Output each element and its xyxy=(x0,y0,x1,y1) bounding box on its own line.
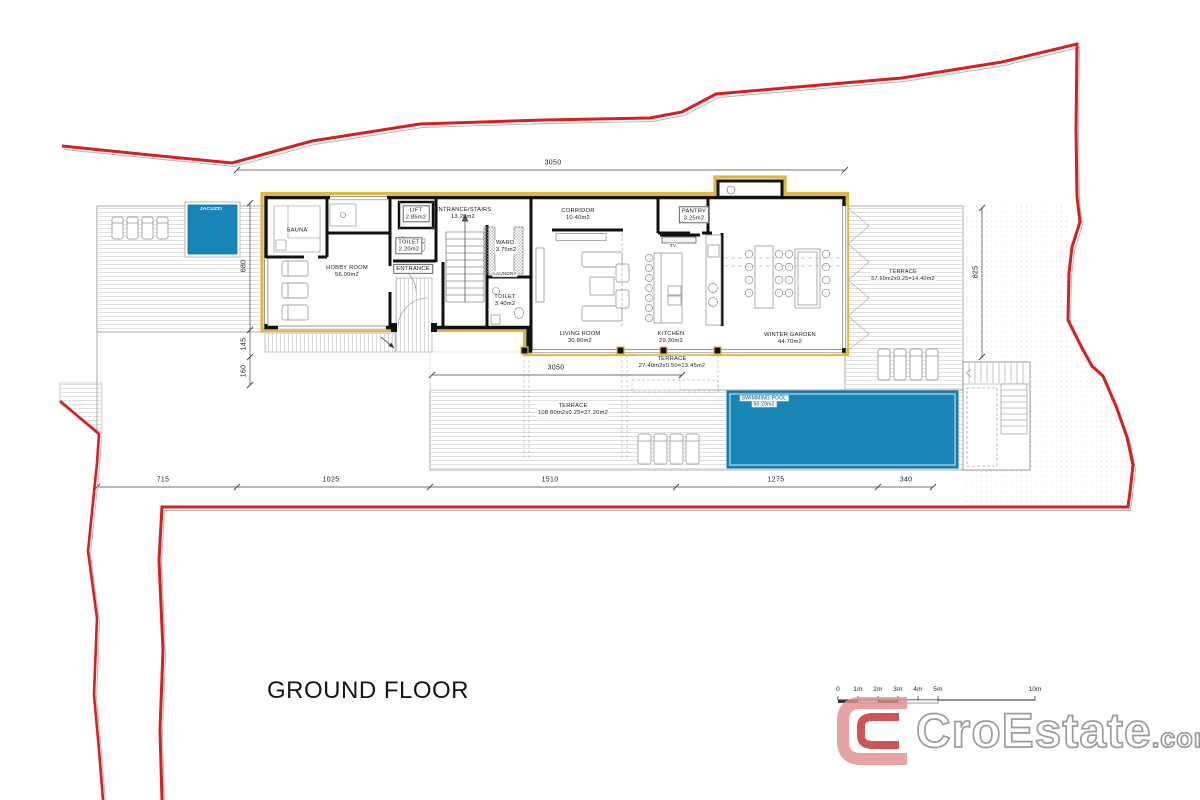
scale-label-1m: 1m xyxy=(853,686,862,694)
room-label-winter-garden: WINTER GARDEN44.70m2 xyxy=(764,332,816,346)
room-label-toilet-1: TOILET2.20m2 xyxy=(395,237,422,254)
terrace-south-label: TERRACE27.40m2x0.50=13.45m2 xyxy=(638,356,707,370)
scale-label-0: 0 xyxy=(836,686,840,694)
room-label-sauna: SAUNA xyxy=(287,227,308,234)
logo-mark-icon xyxy=(843,703,907,759)
room-label-entrance: ENTRANCE xyxy=(393,264,433,274)
room-label-lift: LIFT2.85m2 xyxy=(403,205,430,222)
room-label-corridor: CORRIDOR10.40m2 xyxy=(561,208,594,222)
dim-left-680: 680 xyxy=(241,260,250,273)
floor-plan-drawing xyxy=(0,0,1200,800)
dim-bottom-1510: 1510 xyxy=(542,477,559,486)
room-label-kitchen: KITCHEN29.30m2 xyxy=(658,331,685,345)
room-label-wardrobe: WARD.3.75m2 xyxy=(495,240,518,254)
room-label-pantry: PANTRY3.25m2 xyxy=(679,206,709,223)
floor-plan-canvas: SAUNA HOBBY ROOM56.00m2 LIFT2.85m2 ENTRA… xyxy=(0,0,1200,800)
scale-label-2m: 2m xyxy=(873,686,882,694)
room-label-hobby: HOBBY ROOM56.00m2 xyxy=(326,265,368,279)
dim-south-width: 3050 xyxy=(548,365,565,374)
dim-bottom-1275: 1275 xyxy=(768,477,785,486)
scale-label-3m: 3m xyxy=(893,686,902,694)
brand-name: CroEstate xyxy=(916,706,1152,759)
label-tv: TV xyxy=(669,243,677,249)
terrace-east-label: TERRACE57.60m2x0.25=14.40m2 xyxy=(870,269,935,283)
dim-east-depth: 825 xyxy=(973,266,982,279)
brand-tld: .com xyxy=(1152,725,1200,752)
room-label-living: LIVING ROOM30.80m2 xyxy=(560,331,601,345)
terrace-main-label: TERRACE108.80m2x0.25=27.20m2 xyxy=(537,403,609,417)
room-label-toilet-2: TOILET3.40m2 xyxy=(494,294,515,308)
room-label-entrance-stairs: ENTRANCE/STAIRS13.20m2 xyxy=(434,207,491,221)
page-title: GROUND FLOOR xyxy=(267,677,469,705)
room-label-laundry: LAUNDRY xyxy=(492,271,517,277)
pool-label: SWIMMING POOL 50.20m2 xyxy=(740,394,789,408)
logo-wordmark: CroEstate.com xyxy=(916,706,1200,759)
dim-left-145: 145 xyxy=(241,338,250,351)
entrance-path xyxy=(390,266,437,352)
dim-bottom-1025: 1025 xyxy=(323,477,340,486)
pool-stairs xyxy=(963,362,1030,470)
dim-bottom-715: 715 xyxy=(157,477,170,486)
dim-bottom-340: 340 xyxy=(900,477,913,486)
dim-top-width: 3050 xyxy=(545,160,562,169)
scale-label-4m: 4m xyxy=(913,686,922,694)
jacuzzi-label: JACUZZI xyxy=(200,207,222,213)
scale-label-10m: 10m xyxy=(1028,686,1041,694)
scale-label-5m: 5m xyxy=(933,686,942,694)
dim-left-160: 160 xyxy=(241,365,250,378)
